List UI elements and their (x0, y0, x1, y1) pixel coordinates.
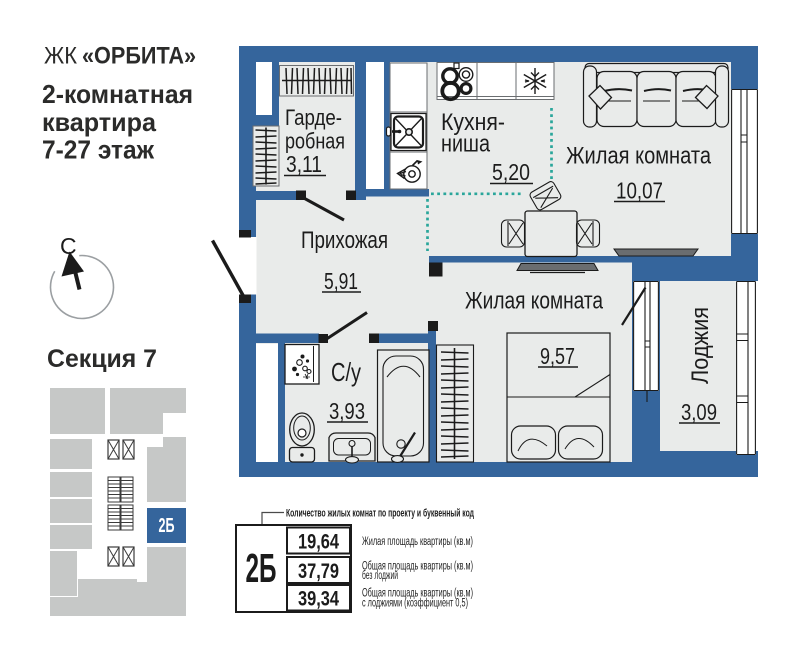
svg-text:без лоджий: без лоджий (362, 570, 398, 582)
svg-text:Количество жилых комнат по про: Количество жилых комнат по проекту и бук… (286, 508, 474, 520)
svg-text:39,34: 39,34 (298, 588, 339, 611)
svg-text:С/у: С/у (331, 357, 361, 387)
svg-text:робная: робная (285, 129, 345, 154)
svg-text:Жилая комната: Жилая комната (566, 143, 712, 170)
svg-text:Секция 7: Секция 7 (47, 345, 157, 373)
svg-text:37,79: 37,79 (298, 560, 339, 583)
svg-text:«ОРБИТА»: «ОРБИТА» (82, 43, 196, 70)
svg-text:С: С (60, 233, 77, 259)
svg-text:5,91: 5,91 (324, 268, 358, 294)
svg-text:с лоджиями (коэффициент 0,5): с лоджиями (коэффициент 0,5) (362, 598, 468, 610)
svg-text:19,64: 19,64 (298, 531, 339, 554)
svg-text:3,11: 3,11 (286, 151, 322, 177)
svg-text:2-комнатная: 2-комнатная (42, 79, 193, 109)
svg-text:2Б: 2Б (246, 545, 277, 591)
svg-text:9,57: 9,57 (540, 343, 575, 369)
svg-text:3,09: 3,09 (681, 399, 717, 425)
svg-text:ЖК: ЖК (44, 43, 77, 70)
svg-text:5,20: 5,20 (492, 159, 530, 185)
svg-text:3,93: 3,93 (329, 398, 365, 424)
svg-text:Гарде-: Гарде- (285, 105, 342, 130)
svg-text:Жилая комната: Жилая комната (465, 288, 604, 315)
svg-text:Лоджия: Лоджия (687, 307, 714, 384)
svg-text:7-27 этаж: 7-27 этаж (42, 135, 155, 165)
svg-text:Жилая площадь квартиры (кв.м): Жилая площадь квартиры (кв.м) (362, 536, 473, 548)
svg-text:10,07: 10,07 (616, 178, 663, 204)
svg-text:2Б: 2Б (159, 515, 175, 537)
svg-text:Прихожая: Прихожая (301, 227, 388, 254)
svg-text:ниша: ниша (441, 131, 491, 158)
svg-text:квартира: квартира (42, 107, 157, 137)
